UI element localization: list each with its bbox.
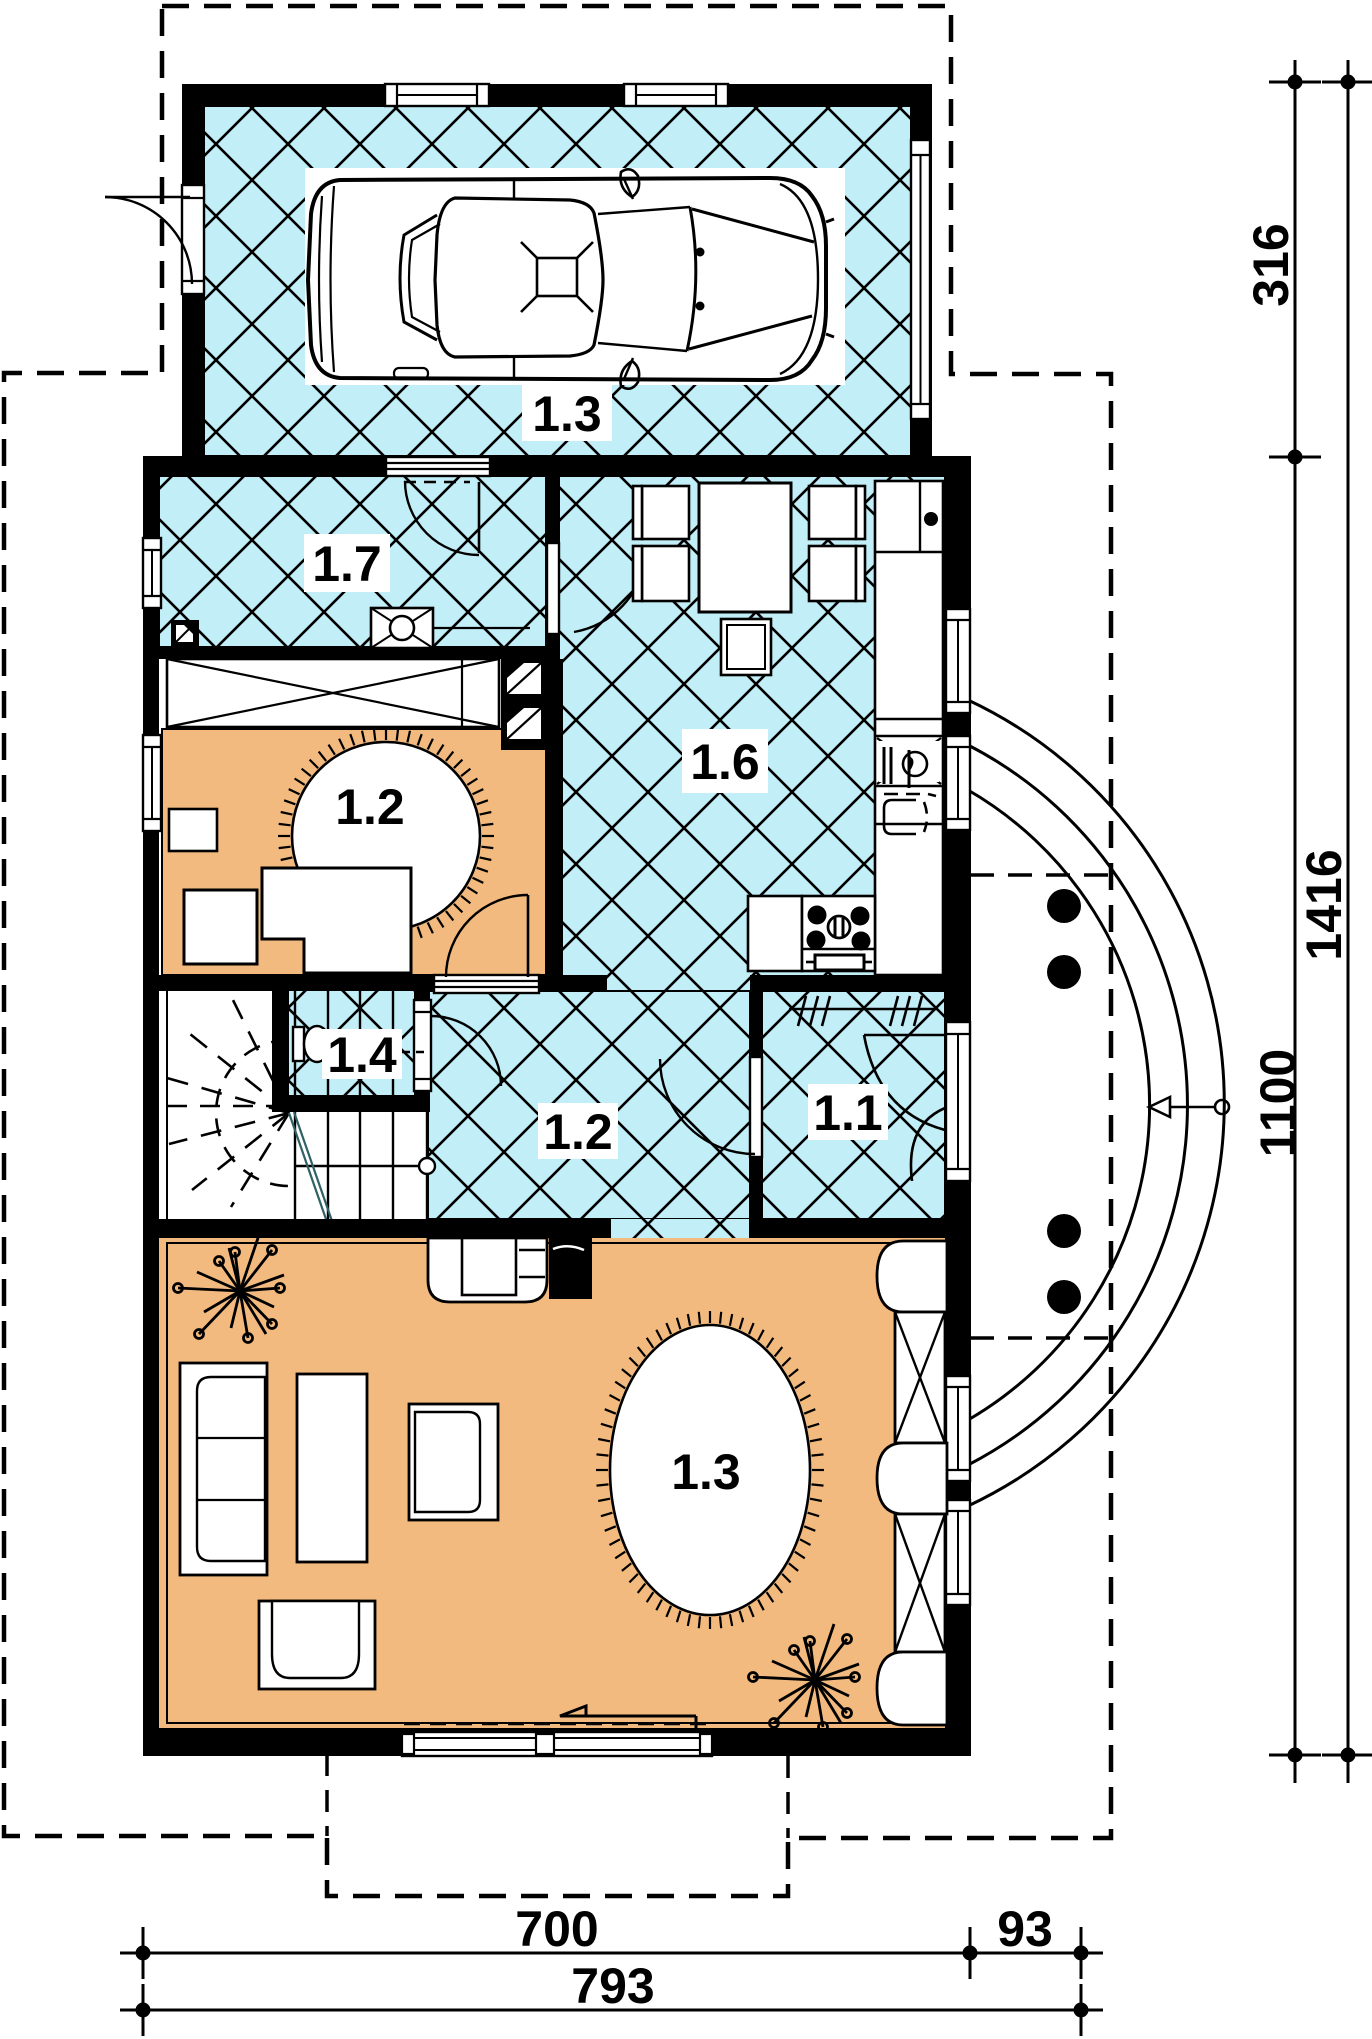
svg-text:793: 793 [571, 1958, 654, 2014]
svg-text:1416: 1416 [1296, 849, 1352, 960]
svg-text:1.2: 1.2 [335, 779, 405, 835]
svg-text:1.4: 1.4 [327, 1027, 397, 1083]
svg-text:316: 316 [1243, 223, 1299, 306]
svg-text:1.1: 1.1 [813, 1085, 883, 1141]
svg-text:1.3: 1.3 [532, 386, 602, 442]
svg-text:700: 700 [515, 1901, 598, 1957]
svg-text:1100: 1100 [1250, 1049, 1306, 1157]
svg-text:1.2: 1.2 [543, 1104, 613, 1160]
svg-text:1.7: 1.7 [312, 536, 382, 592]
svg-text:1.6: 1.6 [690, 734, 760, 790]
svg-text:1.3: 1.3 [671, 1444, 741, 1500]
svg-text:93: 93 [997, 1901, 1053, 1957]
